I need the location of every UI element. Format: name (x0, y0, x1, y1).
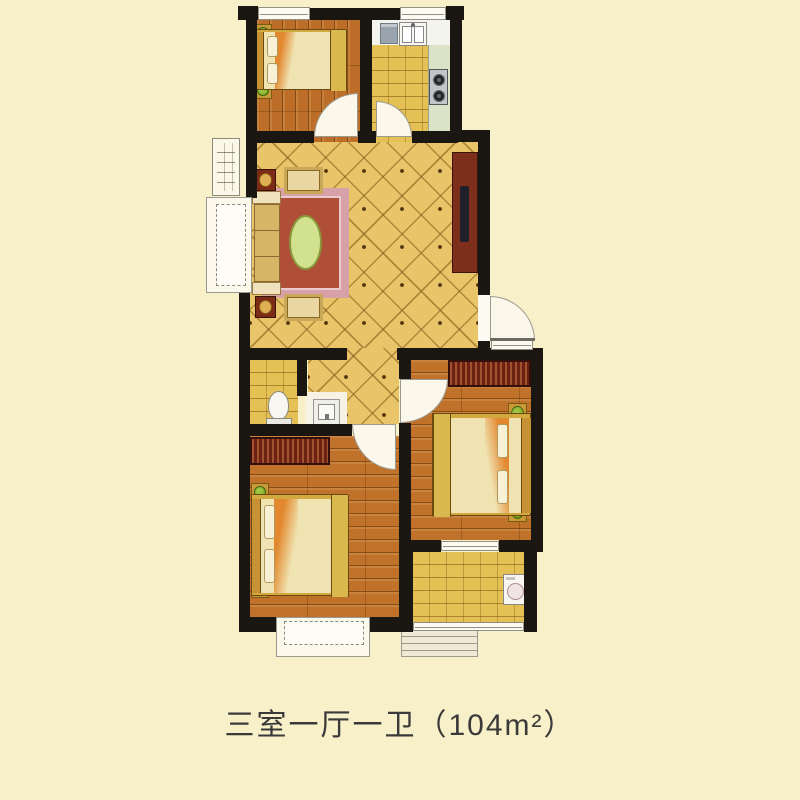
bed-pillow (497, 424, 508, 458)
bed-blanket-accent (275, 32, 295, 89)
sink-basin (402, 26, 412, 43)
wash-basin-icon (313, 399, 340, 425)
oval-coffee-table-icon (289, 215, 322, 270)
wall-living-bath (239, 348, 347, 360)
shaft-symbol (212, 138, 240, 196)
entrance-door-leaf (490, 338, 535, 341)
wall-balcony-right (524, 540, 537, 632)
bay-window-bottom-inner (284, 621, 364, 645)
window-kitchen (400, 7, 446, 20)
wardrobe-icon (448, 360, 531, 387)
bed-pillow (264, 505, 275, 539)
armchair-icon (284, 167, 323, 194)
bed-pillow (267, 63, 278, 84)
plan-caption: 三室一厅一卫（104m²） (0, 700, 800, 744)
tv-cabinet-icon (452, 152, 478, 273)
lamp-icon (259, 173, 272, 187)
side-lamp-table-icon (255, 169, 276, 191)
wall-bedroom-right-side (531, 348, 543, 552)
entrance-opening (478, 295, 490, 341)
lamp-icon (259, 300, 272, 314)
wall-left-upper (246, 8, 257, 198)
wall-door-pier (358, 131, 376, 143)
sink-basin (414, 26, 424, 43)
wall-bedroom-kitchen-divider (360, 18, 372, 142)
sink-faucet (411, 23, 415, 27)
wall-bedroom-top-bottom (250, 131, 314, 143)
bed-blanket-accent (274, 499, 298, 593)
gas-stove-icon (429, 69, 448, 105)
wall-left-lower (239, 292, 250, 622)
wall-kitchen-bottom (412, 131, 458, 143)
wall-living-right (478, 130, 490, 296)
basin-faucet (325, 414, 329, 420)
kitchen-sink-icon (399, 22, 427, 46)
balcony-railing (413, 622, 524, 631)
toilet-bowl (268, 391, 289, 420)
bed-footboard (330, 30, 347, 91)
entrance-door-arc-icon (490, 296, 535, 341)
side-lamp-table-icon (255, 296, 276, 318)
entry-steps-icon (401, 629, 478, 657)
tv-icon (460, 186, 469, 242)
washer-drum (507, 583, 524, 600)
wall-bedrooms-divider-upper (399, 360, 411, 379)
refrigerator-icon (380, 23, 398, 44)
wall-hall-bottom (239, 424, 352, 436)
wardrobe-icon (250, 437, 330, 465)
bed-footboard (433, 414, 451, 517)
double-bed-icon (432, 413, 531, 516)
sofa-armrest (252, 282, 281, 295)
double-bed-icon (254, 29, 346, 90)
sofa-cushions (254, 204, 280, 282)
stove-burner (433, 74, 445, 86)
wall-top (310, 8, 402, 20)
window-bedroom-top (258, 7, 310, 20)
armchair-icon (284, 294, 323, 321)
wall-bottom-right (363, 617, 412, 632)
double-bed-icon (251, 494, 348, 596)
sofa-icon (252, 191, 281, 295)
washer-panel (506, 577, 515, 580)
balcony-sliding-door-sill (441, 541, 499, 551)
bed-pillow (267, 36, 278, 57)
bed-headboard (252, 499, 261, 593)
bed-footboard (331, 495, 349, 597)
wall-bath-stub (297, 360, 307, 396)
stove-burner (433, 90, 445, 102)
bay-window-left-inner (216, 204, 246, 286)
wall-kitchen-right (450, 8, 462, 142)
bed-pillow (497, 470, 508, 504)
bed-pillow (264, 549, 275, 583)
floor-plan-canvas: 三室一厅一卫（104m²） (0, 0, 800, 800)
